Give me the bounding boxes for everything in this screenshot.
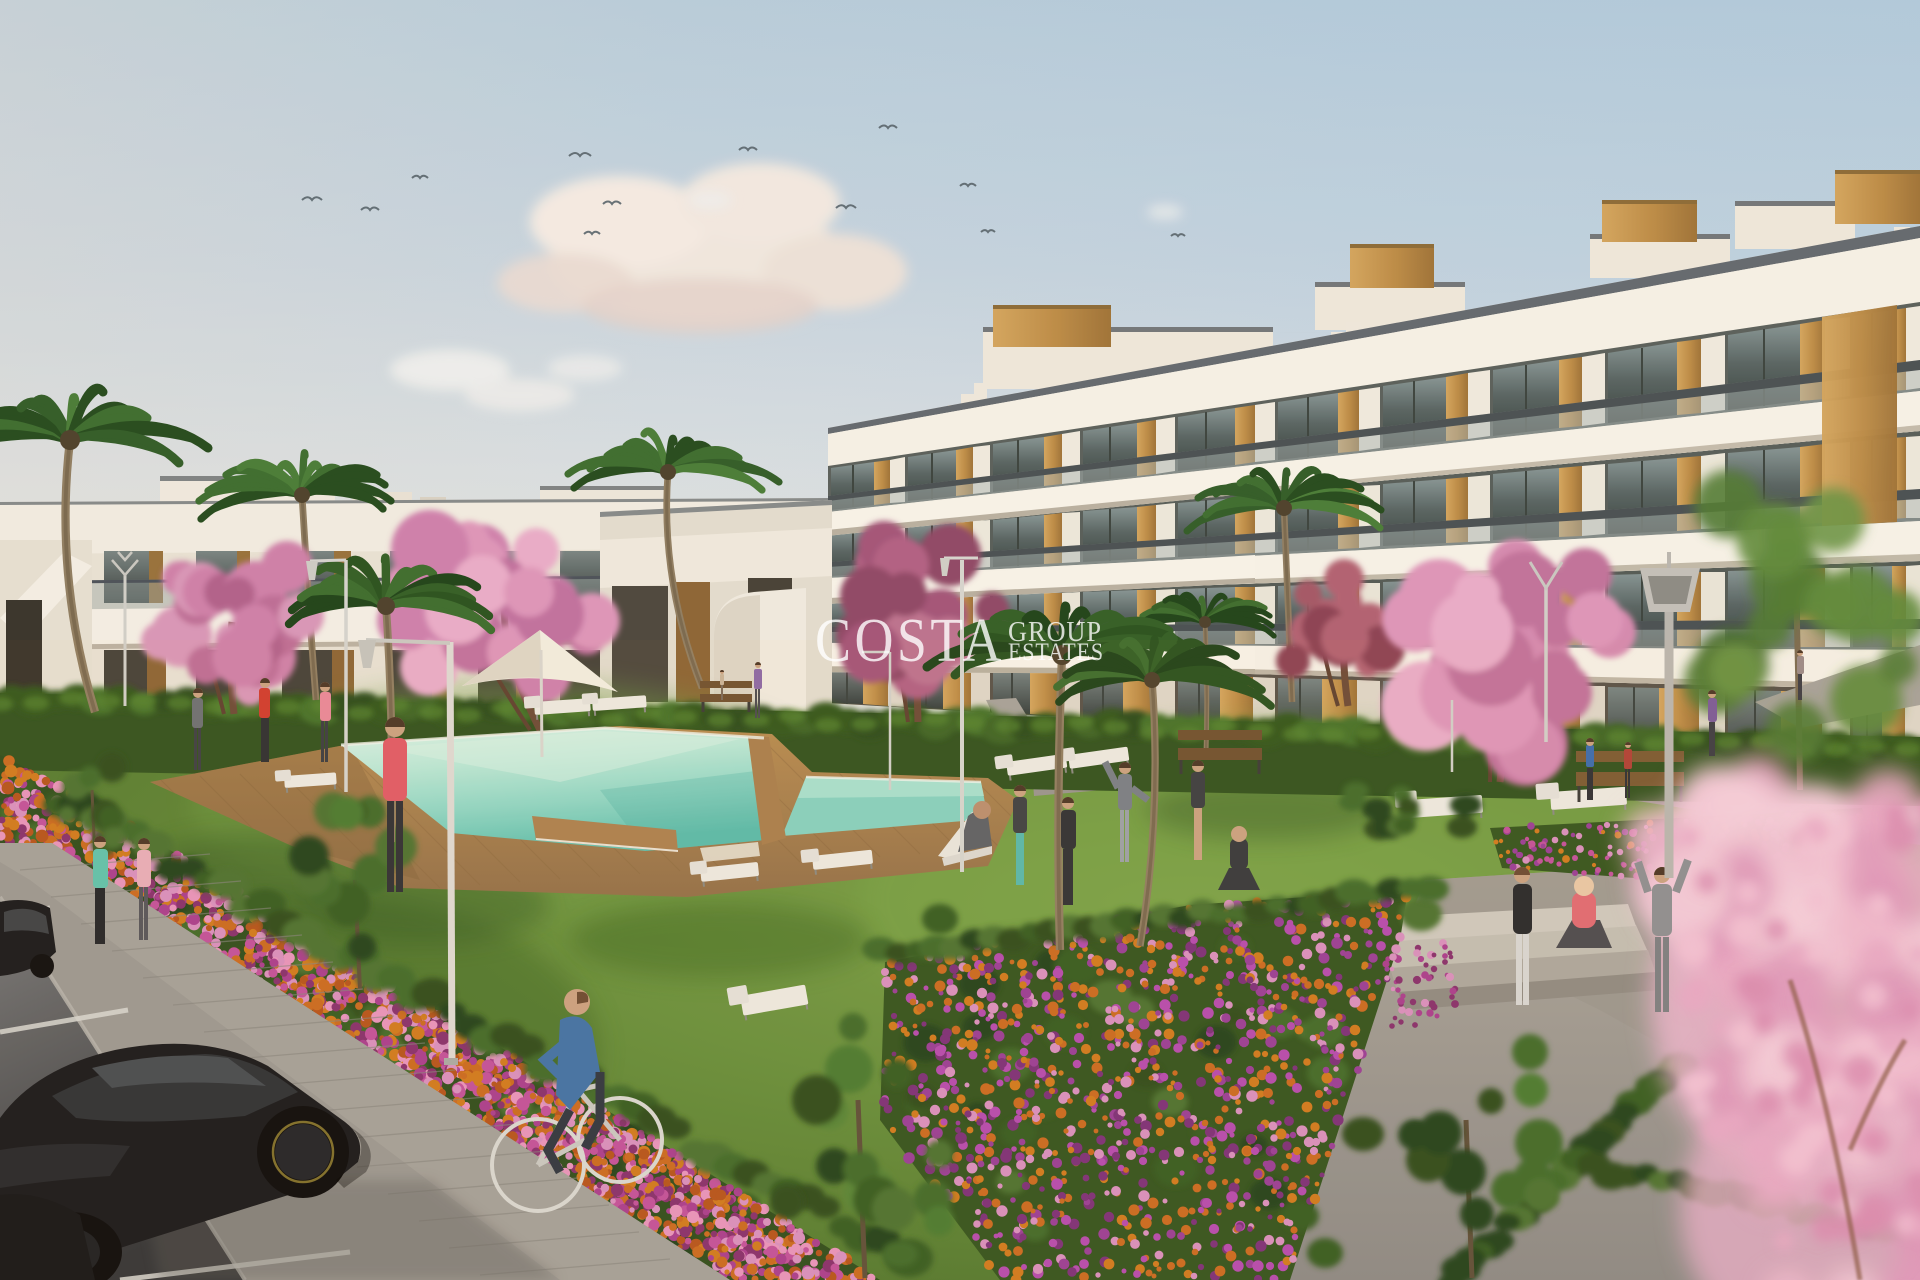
svg-text:COSTA: COSTA <box>815 607 1005 675</box>
svg-text:ESTATES: ESTATES <box>1008 639 1104 666</box>
